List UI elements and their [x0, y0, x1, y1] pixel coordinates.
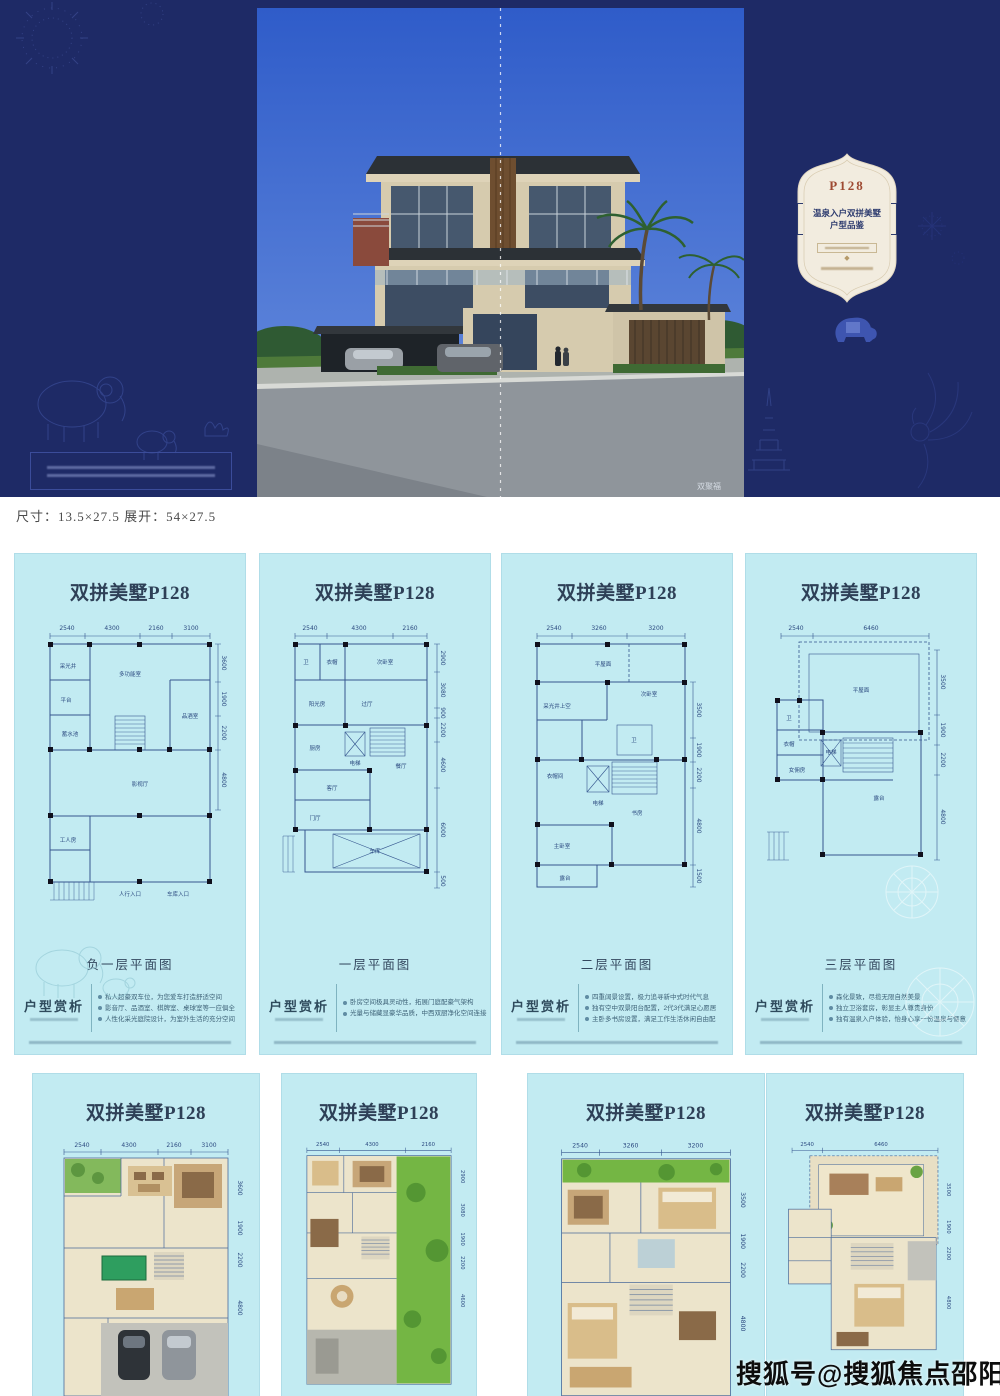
bullet-icon — [98, 1006, 102, 1010]
illegible-disclaimer-line — [760, 1041, 962, 1044]
svg-text:4300: 4300 — [351, 625, 366, 632]
furnished-rooms — [562, 1159, 731, 1396]
svg-text:4300: 4300 — [121, 1142, 136, 1149]
bullet-icon — [98, 1017, 102, 1021]
panel-title: 双拼美墅P128 — [746, 554, 976, 605]
bullet-item: 独立卫浴套房，彰显主人尊贵身份 — [829, 1003, 966, 1014]
svg-text:1900: 1900 — [945, 1220, 951, 1234]
analysis-label: 户型赏析 — [268, 996, 330, 1015]
badge-area-box — [817, 243, 877, 253]
svg-text:6000: 6000 — [439, 822, 446, 837]
svg-text:3260: 3260 — [623, 1142, 639, 1149]
svg-text:4800: 4800 — [739, 1316, 746, 1332]
illegible-text-line — [47, 466, 215, 469]
firework-ornament — [16, 2, 163, 74]
divider — [822, 984, 823, 1032]
badge-title-line1: 温泉入户双拼美墅 — [803, 207, 891, 219]
elephant-ornament — [38, 377, 228, 460]
diamond-ornament-icon: ◆ — [792, 255, 902, 263]
snowflake-ornaments — [918, 212, 964, 264]
cover-left-ornaments — [0, 0, 257, 497]
bullet-icon — [829, 1017, 833, 1021]
room-labels: 卫 衣帽 次卧室 阳光房 过厅 厨房 电梯 餐厅 客厅 门厅 车库 — [303, 658, 407, 855]
svg-text:平屋面: 平屋面 — [853, 687, 870, 694]
plan-caption: 二层平面图 — [502, 954, 732, 973]
panel-title: 双拼美墅P128 — [15, 554, 245, 605]
badge-title: 温泉入户双拼美墅 户型品鉴 — [797, 203, 897, 235]
svg-text:卫: 卫 — [786, 715, 792, 722]
svg-text:衣帽间: 衣帽间 — [547, 772, 564, 780]
svg-text:2540: 2540 — [59, 625, 74, 632]
svg-text:2200: 2200 — [236, 1252, 243, 1267]
analysis-bullets: 卧房空间极具灵动性，拓展门庭配豪气架构 光量与储藏显豪华品质，中西双厨净化空间连… — [343, 997, 487, 1019]
svg-text:影视厅: 影视厅 — [132, 780, 149, 788]
bullet-item: 主卧多书房设置，满足工作生活休闲自由配 — [585, 1014, 716, 1025]
svg-text:电梯: 电梯 — [349, 759, 361, 767]
villa-rendering-photo: 双聚福 — [257, 8, 744, 497]
svg-text:4800: 4800 — [695, 818, 702, 833]
bullet-item: 独有温泉入户体验，怡身心享一份温泉与惬意 — [829, 1014, 966, 1025]
divider — [336, 984, 337, 1032]
first-floor-plan-drawing: 2540 4300 2160 2900 3080 900 2200 4600 6… — [275, 620, 475, 910]
svg-text:采光井: 采光井 — [60, 662, 77, 670]
svg-text:2900: 2900 — [439, 650, 446, 665]
third-floor-plan-drawing: 2540 6460 3500 1900 2200 4800 — [761, 620, 961, 910]
illegible-text-line — [517, 1018, 565, 1021]
svg-text:平台: 平台 — [60, 696, 72, 704]
svg-text:3200: 3200 — [648, 625, 663, 632]
bullet-icon — [585, 1006, 589, 1010]
divider — [578, 984, 579, 1032]
sohu-watermark: 搜狐号@搜狐焦点邵阳站 — [736, 1354, 1000, 1391]
furnished-second-floor-plan: 2540 3260 3200 3500 1900 2200 4800 — [543, 1138, 749, 1396]
svg-text:采光井上空: 采光井上空 — [543, 702, 571, 710]
panel-title: 双拼美墅P128 — [502, 554, 732, 605]
svg-text:露台: 露台 — [873, 794, 885, 802]
analysis-block: 户型赏析 森化景致，尽揽无限自然美景 独立卫浴套房，彰显主人尊贵身份 独有温泉入… — [754, 980, 968, 1036]
svg-text:3100: 3100 — [183, 625, 198, 632]
stupa-ornament — [748, 388, 790, 470]
svg-text:2200: 2200 — [739, 1262, 746, 1278]
furnished-panel-third-floor: 双拼美墅P128 2540 6460 3500 1900 2200 4800 — [766, 1073, 964, 1396]
svg-text:3260: 3260 — [591, 625, 606, 632]
cover-disclaimer-box — [30, 452, 232, 490]
furnished-third-floor-plan: 2540 6460 3500 1900 2200 4800 — [776, 1138, 954, 1388]
svg-text:厨房: 厨房 — [309, 744, 321, 752]
plan-caption: 三层平面图 — [746, 954, 976, 973]
brochure-page: 双聚福 — [0, 0, 1000, 1396]
panel-title: 双拼美墅P128 — [260, 554, 490, 605]
badge-title-line2: 户型品鉴 — [803, 219, 891, 231]
elephant-emblem — [826, 306, 878, 346]
svg-text:4300: 4300 — [365, 1142, 378, 1148]
svg-text:客厅: 客厅 — [326, 784, 338, 792]
furnished-rooms — [64, 1158, 228, 1396]
furnished-rooms — [307, 1156, 451, 1385]
svg-text:车库: 车库 — [369, 847, 381, 855]
svg-text:品酒室: 品酒室 — [182, 712, 199, 720]
bullet-item: 卧房空间极具灵动性，拓展门庭配豪气架构 — [343, 997, 487, 1008]
analysis-bullets: 森化景致，尽揽无限自然美景 独立卫浴套房，彰显主人尊贵身份 独有温泉入户体验，怡… — [829, 992, 966, 1025]
svg-text:1900: 1900 — [739, 1233, 746, 1249]
illegible-text-line — [761, 1018, 809, 1021]
svg-text:2540: 2540 — [546, 625, 561, 632]
svg-text:3500: 3500 — [945, 1183, 951, 1197]
svg-text:2540: 2540 — [302, 625, 317, 632]
svg-text:2200: 2200 — [939, 752, 946, 767]
svg-text:2200: 2200 — [220, 725, 227, 740]
analysis-label: 户型赏析 — [510, 996, 572, 1015]
panel-title: 双拼美墅P128 — [528, 1074, 764, 1125]
bullet-item: 影音厅、品酒室、棋牌室、桌球室等一应俱全 — [98, 1003, 235, 1014]
svg-text:4600: 4600 — [439, 757, 446, 772]
analysis-label: 户型赏析 — [23, 996, 85, 1015]
size-spec-line: 尺寸：13.5×27.5 展开：54×27.5 — [16, 506, 216, 525]
illegible-text-line — [47, 474, 215, 477]
panel-title: 双拼美墅P128 — [767, 1074, 963, 1125]
svg-text:3200: 3200 — [688, 1142, 704, 1149]
badge-code: P128 — [792, 178, 902, 194]
furnished-rooms — [788, 1156, 937, 1350]
svg-text:电梯: 电梯 — [592, 799, 604, 807]
svg-text:1900: 1900 — [695, 742, 702, 757]
svg-text:工人房: 工人房 — [60, 836, 77, 844]
svg-text:2540: 2540 — [316, 1142, 329, 1148]
svg-text:2160: 2160 — [166, 1142, 181, 1149]
analysis-block: 户型赏析 私人超豪双车位，为您爱车打造舒适空间 影音厅、品酒室、棋牌室、桌球室等… — [23, 980, 237, 1036]
walls — [48, 642, 212, 900]
bullet-icon — [829, 1006, 833, 1010]
photo-corner-mark: 双聚福 — [697, 482, 721, 491]
bullet-icon — [585, 1017, 589, 1021]
svg-text:主卧室: 主卧室 — [554, 842, 571, 850]
svg-text:2540: 2540 — [572, 1142, 588, 1149]
analysis-label: 户型赏析 — [754, 996, 816, 1015]
walls — [283, 642, 429, 874]
room-labels: 采光井 平台 蓄水池 多功能室 品酒室 影视厅 工人房 人行入口 车库入口 — [60, 662, 199, 898]
svg-text:4800: 4800 — [945, 1296, 951, 1310]
svg-text:2200: 2200 — [459, 1256, 465, 1269]
bullet-item: 光量与储藏显豪华品质，中西双厨净化空间连接 — [343, 1008, 487, 1019]
svg-text:平屋面: 平屋面 — [595, 661, 612, 668]
svg-text:4800: 4800 — [220, 772, 227, 787]
villa-illustration: 双聚福 — [257, 8, 744, 497]
svg-text:3080: 3080 — [439, 682, 446, 697]
illegible-text-line — [821, 267, 873, 270]
svg-text:书房: 书房 — [631, 809, 643, 817]
svg-text:2540: 2540 — [788, 625, 803, 632]
bullet-icon — [343, 1012, 347, 1016]
svg-text:卫: 卫 — [303, 659, 309, 666]
svg-text:3500: 3500 — [939, 674, 946, 689]
panel-title: 双拼美墅P128 — [33, 1074, 259, 1125]
analysis-block: 户型赏析 四重阔景设置，极力追寻新中式时代气息 独有空中双景阳台配置，2代3代满… — [510, 980, 724, 1036]
svg-text:500: 500 — [439, 875, 446, 887]
illegible-disclaimer-line — [516, 1041, 718, 1044]
bullet-icon — [98, 995, 102, 999]
svg-text:1900: 1900 — [939, 722, 946, 737]
illegible-text-line — [825, 247, 869, 249]
bullet-item: 人性化采光庭院设计，为室外生活的充分空间 — [98, 1014, 235, 1025]
plan-caption: 一层平面图 — [260, 954, 490, 973]
floorplan-panel-first-floor: 双拼美墅P128 2540 4300 2160 2900 3080 900 22… — [259, 553, 491, 1055]
illegible-disclaimer-line — [274, 1041, 476, 1044]
svg-text:女佣房: 女佣房 — [789, 766, 806, 774]
svg-text:人行入口: 人行入口 — [119, 890, 141, 898]
svg-text:4800: 4800 — [939, 809, 946, 824]
furnished-panel-basement: 双拼美墅P128 2540 4300 2160 3100 3600 1900 2… — [32, 1073, 260, 1396]
svg-text:车库入口: 车库入口 — [167, 890, 189, 898]
bullet-item: 四重阔景设置，极力追寻新中式时代气息 — [585, 992, 716, 1003]
svg-text:3100: 3100 — [201, 1142, 216, 1149]
svg-text:卫: 卫 — [631, 737, 637, 744]
plan-caption: 负一层平面图 — [15, 954, 245, 973]
panel-title: 双拼美墅P128 — [282, 1074, 476, 1125]
svg-text:4800: 4800 — [236, 1300, 243, 1315]
svg-text:餐厅: 餐厅 — [395, 762, 407, 770]
bullet-item: 独有空中双景阳台配置，2代3代满足心愿居 — [585, 1003, 716, 1014]
bullet-icon — [829, 995, 833, 999]
analysis-bullets: 四重阔景设置，极力追寻新中式时代气息 独有空中双景阳台配置，2代3代满足心愿居 … — [585, 992, 716, 1025]
svg-text:阳光房: 阳光房 — [309, 700, 326, 708]
svg-text:3500: 3500 — [695, 702, 702, 717]
furnished-basement-plan: 2540 4300 2160 3100 3600 1900 2200 4800 — [46, 1138, 246, 1396]
svg-text:2900: 2900 — [459, 1170, 465, 1183]
bullet-item: 私人超豪双车位，为您爱车打造舒适空间 — [98, 992, 235, 1003]
svg-text:2540: 2540 — [74, 1142, 89, 1149]
svg-text:900: 900 — [439, 707, 446, 719]
svg-text:3600: 3600 — [236, 1180, 243, 1195]
svg-text:2200: 2200 — [945, 1247, 951, 1261]
svg-text:2160: 2160 — [402, 625, 417, 632]
svg-text:门厅: 门厅 — [309, 814, 321, 822]
svg-text:电梯: 电梯 — [825, 748, 837, 756]
analysis-bullets: 私人超豪双车位，为您爱车打造舒适空间 影音厅、品酒室、棋牌室、桌球室等一应俱全 … — [98, 992, 235, 1025]
floorplan-panel-second-floor: 双拼美墅P128 2540 3260 3200 3500 1900 2200 4… — [501, 553, 733, 1055]
svg-text:1900: 1900 — [459, 1232, 465, 1245]
analysis-block: 户型赏析 卧房空间极具灵动性，拓展门庭配豪气架构 光量与储藏显豪华品质，中西双厨… — [268, 980, 482, 1036]
divider — [91, 984, 92, 1032]
svg-text:2160: 2160 — [148, 625, 163, 632]
svg-text:2200: 2200 — [695, 767, 702, 782]
svg-text:3600: 3600 — [220, 655, 227, 670]
svg-text:1900: 1900 — [236, 1220, 243, 1235]
svg-text:4300: 4300 — [104, 625, 119, 632]
illegible-text-line — [30, 1018, 78, 1021]
svg-text:衣帽: 衣帽 — [783, 740, 795, 748]
cover-badge: P128 温泉入户双拼美墅 户型品鉴 ◆ — [792, 152, 902, 304]
illegible-text-line — [275, 1018, 323, 1021]
walls — [535, 642, 687, 887]
svg-text:次卧室: 次卧室 — [641, 690, 658, 698]
svg-text:6460: 6460 — [863, 625, 878, 632]
basement-plan-drawing: 2540 4300 2160 3100 3600 1900 2200 4800 … — [30, 620, 230, 910]
svg-text:2540: 2540 — [800, 1142, 814, 1148]
bullet-item: 森化景致，尽揽无限自然美景 — [829, 992, 966, 1003]
svg-text:3080: 3080 — [459, 1203, 465, 1216]
peacock-ornament — [911, 373, 972, 488]
bullet-icon — [343, 1001, 347, 1005]
svg-text:过厅: 过厅 — [361, 700, 373, 708]
floorplan-panel-basement: 双拼美墅P128 2540 4300 2160 3100 3600 1900 2… — [14, 553, 246, 1055]
room-labels: 平屋面 卫 衣帽 电梯 女佣房 露台 — [783, 687, 885, 802]
svg-text:多功能室: 多功能室 — [119, 670, 142, 678]
brochure-cover: 双聚福 — [0, 0, 1000, 497]
svg-text:1500: 1500 — [695, 868, 702, 883]
furnished-first-floor-plan: 2540 4300 2160 2900 3080 1900 2200 4600 — [291, 1138, 467, 1386]
svg-text:次卧室: 次卧室 — [377, 658, 394, 666]
svg-text:露台: 露台 — [559, 874, 571, 882]
svg-text:4600: 4600 — [459, 1294, 465, 1307]
svg-text:衣帽: 衣帽 — [326, 658, 338, 666]
svg-text:1900: 1900 — [220, 691, 227, 706]
second-floor-plan-drawing: 2540 3260 3200 3500 1900 2200 4800 1500 — [517, 620, 717, 910]
walls — [767, 642, 929, 860]
bullet-icon — [585, 995, 589, 999]
svg-text:2160: 2160 — [422, 1142, 435, 1148]
illegible-disclaimer-line — [29, 1041, 231, 1044]
floorplan-panel-third-floor: 双拼美墅P128 2540 6460 3500 1900 2200 4800 — [745, 553, 977, 1055]
furnished-panel-second-floor: 双拼美墅P128 2540 3260 3200 3500 1900 2200 4… — [527, 1073, 765, 1396]
furnished-panel-first-floor: 双拼美墅P128 2540 4300 2160 2900 3080 1900 2… — [281, 1073, 477, 1396]
svg-text:3500: 3500 — [739, 1192, 746, 1208]
svg-text:6460: 6460 — [874, 1142, 888, 1148]
svg-text:2200: 2200 — [439, 722, 446, 737]
room-labels: 平屋面 次卧室 采光井上空 卫 衣帽间 电梯 书房 主卧室 露台 — [543, 661, 658, 882]
svg-text:蓄水池: 蓄水池 — [62, 730, 79, 738]
